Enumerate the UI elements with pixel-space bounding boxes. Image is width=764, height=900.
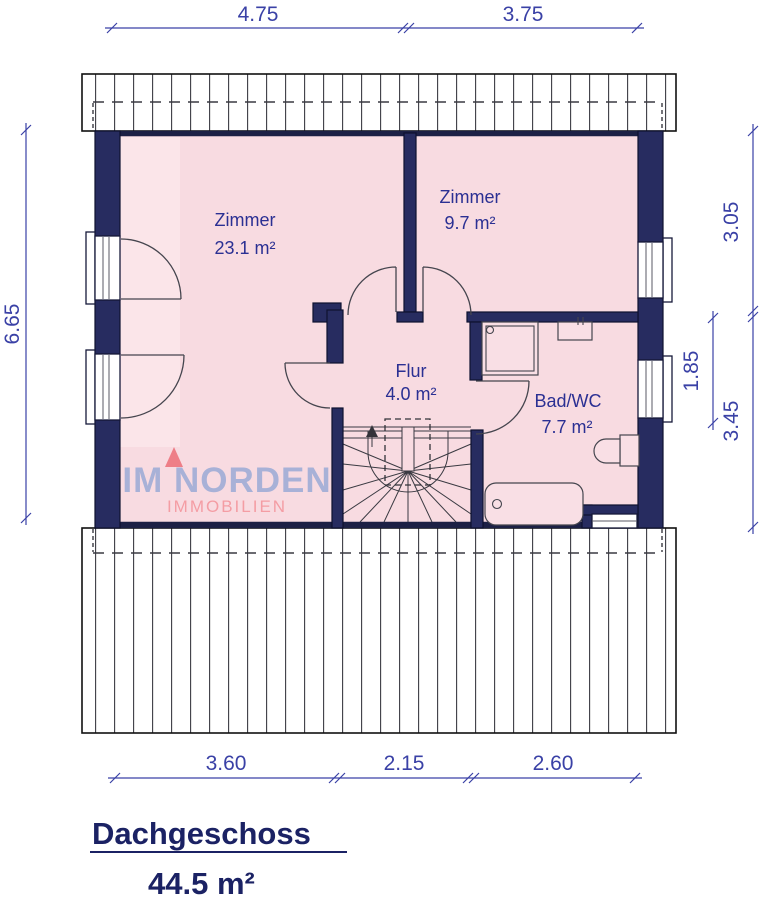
room-area-flur: 4.0 m² bbox=[385, 384, 436, 404]
window-right-upper bbox=[638, 238, 672, 302]
shower bbox=[482, 322, 538, 375]
left-wall-lower bbox=[95, 420, 120, 528]
top-wall bbox=[95, 131, 663, 136]
watermark-sub: IMMOBILIEN bbox=[167, 497, 287, 516]
partition-wall bbox=[404, 133, 416, 312]
dimension-right-inner: 1.85 bbox=[680, 311, 718, 430]
dim-label-left-1: 6.65 bbox=[1, 304, 24, 345]
dim-label-top-2: 3.75 bbox=[503, 3, 544, 26]
window-right-lower bbox=[638, 356, 672, 422]
room-name-flur: Flur bbox=[396, 361, 427, 381]
total-area: 44.5 m² bbox=[148, 866, 255, 900]
room-area-zimmer-left: 23.1 m² bbox=[214, 238, 275, 258]
roof-overhang-bottom bbox=[82, 528, 676, 733]
bathtub bbox=[485, 483, 583, 525]
stair-pier-right bbox=[471, 430, 483, 528]
floor-plan-page: Zimmer 23.1 m² Zimmer 9.7 m² Flur 4.0 m²… bbox=[0, 0, 764, 900]
hall-wall-piece-v bbox=[327, 310, 343, 363]
stair-newel-post bbox=[402, 427, 414, 471]
partition-wall-foot bbox=[397, 312, 423, 322]
dimension-left: 6.65 bbox=[1, 123, 31, 525]
bath-north-wall bbox=[467, 312, 638, 322]
dimension-top: 4.75 3.75 bbox=[105, 3, 644, 33]
window-left-lower bbox=[86, 350, 120, 424]
right-wall-middle bbox=[638, 298, 663, 360]
window-left-upper bbox=[86, 232, 120, 304]
watermark-brand: IM NORDEN bbox=[122, 461, 331, 500]
right-wall-upper bbox=[638, 131, 663, 242]
room-area-zimmer-right: 9.7 m² bbox=[444, 213, 495, 233]
roof-slope-shading bbox=[120, 137, 180, 447]
right-wall-lower bbox=[638, 418, 663, 528]
roof-overhang-top bbox=[82, 74, 676, 131]
page-title: Dachgeschoss bbox=[92, 816, 311, 851]
left-wall-middle bbox=[95, 300, 120, 354]
dim-label-top-1: 4.75 bbox=[238, 3, 279, 26]
dim-label-bottom-2: 2.15 bbox=[384, 752, 425, 775]
dim-label-right-2: 3.45 bbox=[720, 401, 743, 442]
room-name-zimmer-right: Zimmer bbox=[440, 187, 501, 207]
left-wall-upper bbox=[95, 131, 120, 236]
room-name-bad: Bad/WC bbox=[534, 391, 601, 411]
dim-label-right-inner-1: 1.85 bbox=[680, 351, 703, 392]
toilet bbox=[594, 435, 639, 466]
room-name-zimmer-left: Zimmer bbox=[215, 210, 276, 230]
dimension-bottom: 3.60 2.15 2.60 bbox=[108, 752, 642, 783]
window-bath-south bbox=[592, 514, 637, 528]
dim-label-bottom-3: 2.60 bbox=[533, 752, 574, 775]
stair-pier-left bbox=[332, 408, 343, 528]
title-block: Dachgeschoss 44.5 m² bbox=[90, 816, 347, 900]
room-area-bad: 7.7 m² bbox=[541, 417, 592, 437]
dim-label-bottom-1: 3.60 bbox=[206, 752, 247, 775]
floor-plan-drawing: Zimmer 23.1 m² Zimmer 9.7 m² Flur 4.0 m²… bbox=[0, 0, 764, 900]
dimension-right-outer: 3.05 3.45 bbox=[720, 124, 758, 534]
bath-west-wall-upper bbox=[470, 322, 482, 380]
dim-label-right-1: 3.05 bbox=[720, 202, 743, 243]
